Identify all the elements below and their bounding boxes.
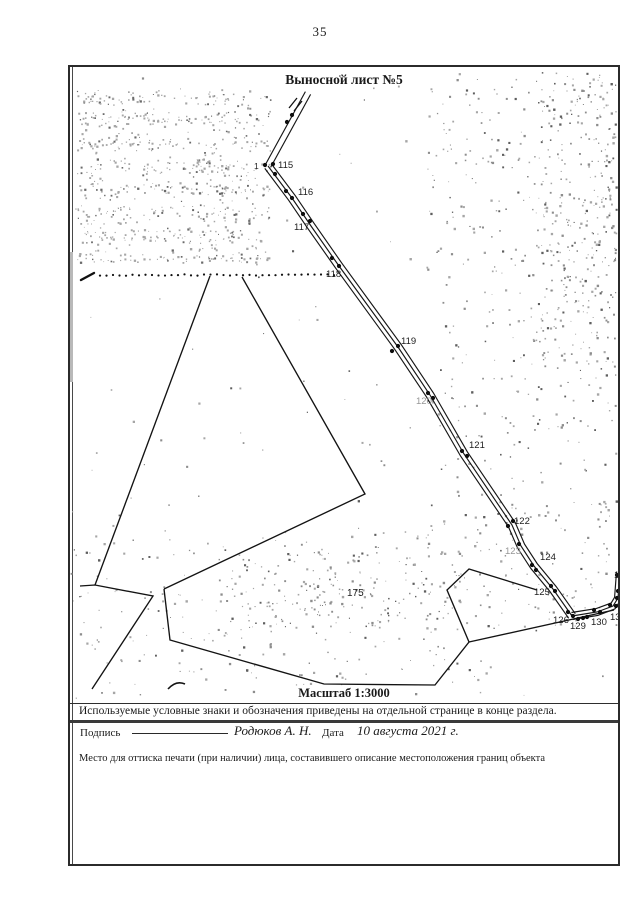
map-point-label: 123 bbox=[505, 546, 521, 557]
signature-blank-line bbox=[132, 719, 228, 734]
sheet-title: Выносной лист №5 bbox=[70, 72, 618, 88]
map-point-label: 117 bbox=[294, 222, 309, 233]
map-point-label: 131 bbox=[610, 612, 618, 623]
map-point-label: 125 bbox=[534, 587, 550, 598]
map-point-label: 115 bbox=[278, 160, 293, 171]
sheet-frame: Выносной лист №5 11151161171181191201211… bbox=[68, 65, 620, 866]
map-scale-label: Масштаб 1:3000 bbox=[70, 686, 618, 701]
map-point-label: 118 bbox=[326, 269, 341, 280]
map-point-label: 175 bbox=[347, 588, 364, 599]
map-point-label: 129 bbox=[570, 621, 586, 632]
map-point-label: 126 bbox=[553, 615, 569, 626]
map-point-label: 122 bbox=[514, 516, 530, 527]
signature-label: Подпись bbox=[80, 727, 120, 739]
page-number: 35 bbox=[0, 24, 640, 40]
legend-note-text: Используемые условные знаки и обозначени… bbox=[79, 705, 557, 717]
map-point-label: 1 bbox=[254, 161, 259, 171]
date-label: Дата bbox=[322, 727, 344, 739]
map-point-label: 116 bbox=[298, 187, 313, 198]
stamp-place-note: Место для оттиска печати (при наличии) л… bbox=[79, 753, 600, 764]
map-point-label: 119 bbox=[401, 336, 416, 347]
map-point-label: 130 bbox=[591, 617, 607, 628]
map-point-label: 120 bbox=[416, 396, 432, 407]
map-point-label: 121 bbox=[469, 440, 485, 451]
date-value: 10 августа 2021 г. bbox=[357, 723, 459, 739]
scanned-document-page: 35 Выносной лист №5 11151161171181191201… bbox=[0, 0, 640, 905]
signature-name: Родюков А. Н. bbox=[234, 723, 312, 739]
map-canvas: 1115116117118119120121122123124125126129… bbox=[70, 67, 618, 704]
map-point-label: 124 bbox=[540, 552, 556, 563]
map-point-label: 132 bbox=[614, 570, 618, 581]
